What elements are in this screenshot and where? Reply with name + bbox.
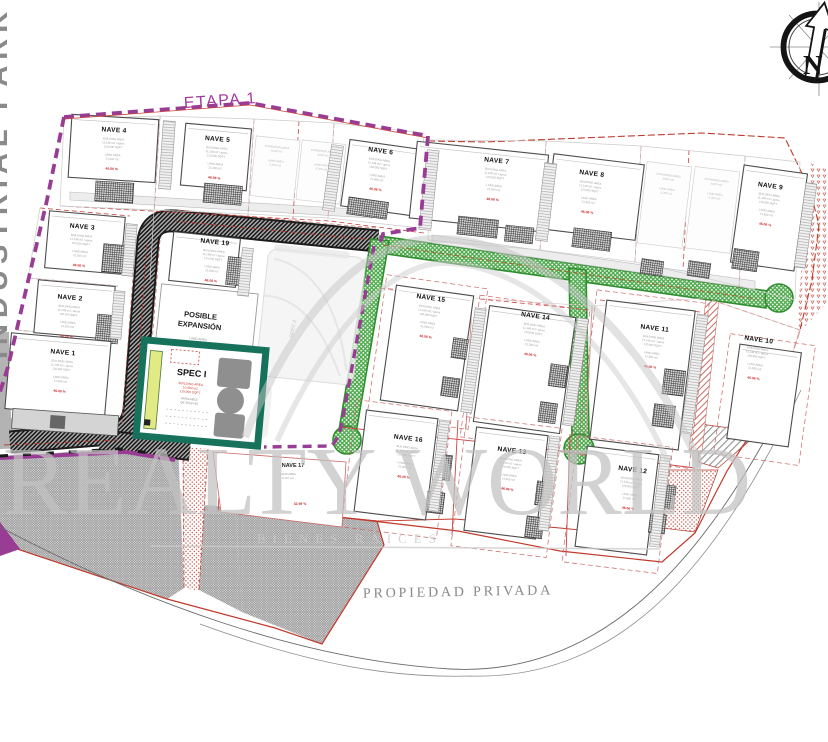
svg-text:N: N <box>803 50 823 80</box>
svg-text:46.06 %: 46.06 % <box>105 167 118 172</box>
svg-text:INDUSTRIAL PARK: INDUSTRIAL PARK <box>0 6 14 359</box>
svg-text:21,500 m2: 21,500 m2 <box>106 157 120 162</box>
svg-text:REALTY WORLD: REALTY WORLD <box>3 428 751 535</box>
svg-text:BIENES RAICES: BIENES RAICES <box>257 531 443 546</box>
